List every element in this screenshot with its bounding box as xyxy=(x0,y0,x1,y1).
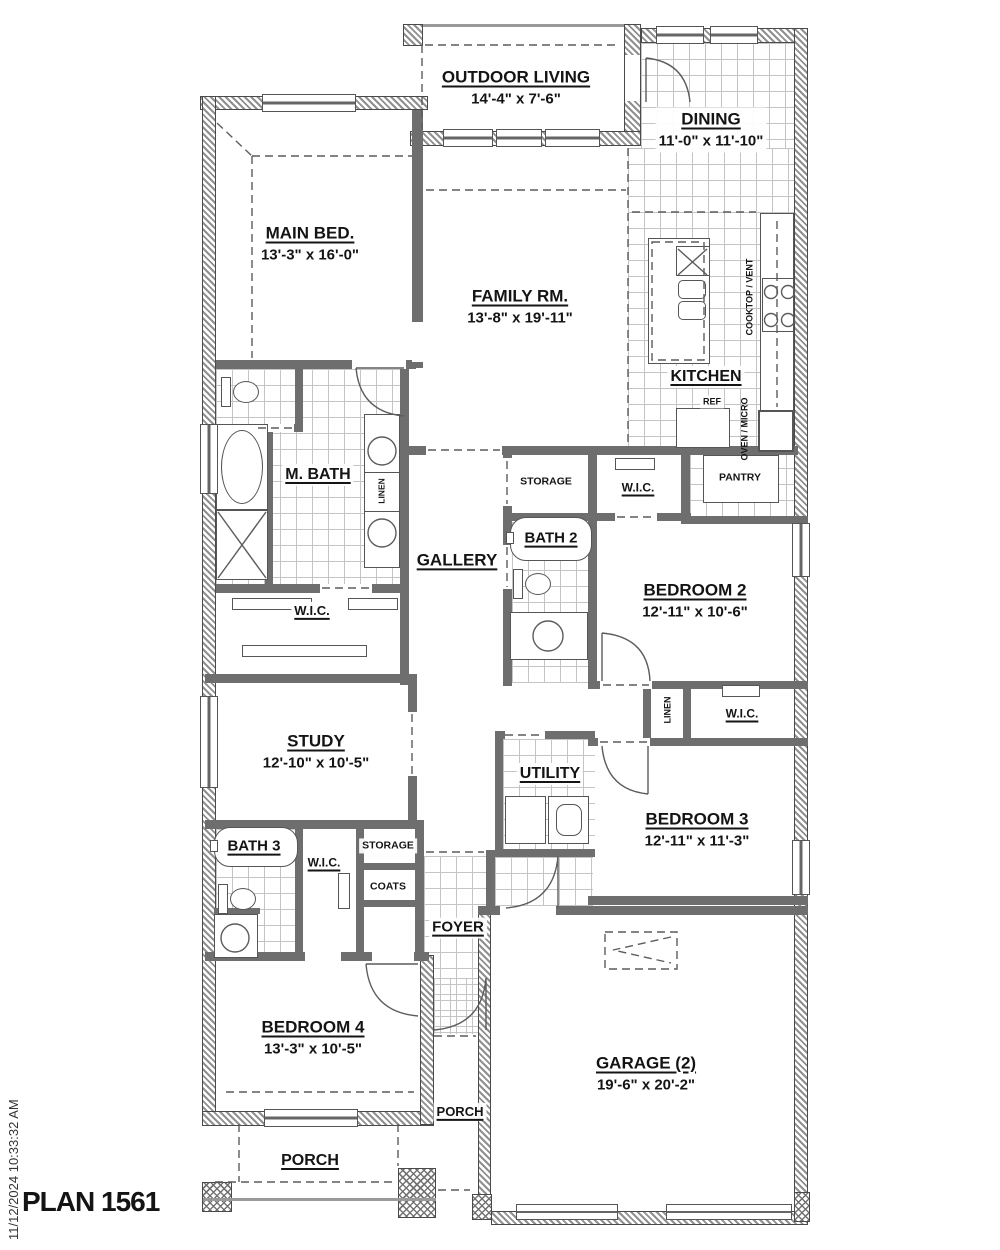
room-dims: 12'-10" x 10'-5" xyxy=(263,755,369,772)
room-label-pantry: PANTRY xyxy=(716,470,764,485)
door-opening xyxy=(615,513,657,521)
room-label-kitchen: KITCHEN xyxy=(667,366,744,388)
wall-segment xyxy=(681,446,690,521)
door-opening xyxy=(600,681,652,689)
room-label-porch-front: PORCH xyxy=(278,1150,342,1172)
room-label-main-bed: MAIN BED. 13'-3" x 16'-0" xyxy=(258,222,362,267)
room-name: LINEN xyxy=(662,697,672,724)
window xyxy=(264,1109,358,1127)
toilet-tank xyxy=(218,884,228,914)
appliance-name: REF xyxy=(703,396,721,406)
vanity xyxy=(214,914,258,958)
room-name: BEDROOM 3 xyxy=(646,810,749,829)
room-name: W.I.C. xyxy=(622,481,655,495)
porch-post xyxy=(398,1168,436,1218)
toilet-bowl xyxy=(233,381,259,403)
room-label-bedroom3: BEDROOM 3 12'-11" x 11'-3" xyxy=(642,808,753,853)
porch-post xyxy=(472,1194,492,1220)
room-name: STUDY xyxy=(287,732,345,751)
room-name: STORAGE xyxy=(362,839,414,851)
window xyxy=(200,696,218,788)
closet-rod xyxy=(615,458,655,470)
room-name: STORAGE xyxy=(520,475,572,487)
room-dims: 12'-11" x 11'-3" xyxy=(645,833,750,850)
wall-segment xyxy=(420,955,434,1125)
room-name: BEDROOM 4 xyxy=(262,1018,365,1037)
room-dims: 19'-6" x 20'-2" xyxy=(597,1077,695,1094)
wall-segment xyxy=(681,516,808,524)
wall-segment xyxy=(216,584,406,593)
closet-rod xyxy=(722,685,760,697)
room-name: LINEN xyxy=(377,478,387,504)
mud-hall-tile-floor xyxy=(495,857,593,907)
room-label-m-bath: M. BATH xyxy=(282,464,353,486)
door-opening xyxy=(503,458,512,506)
room-dims: 11'-0" x 11'-10" xyxy=(659,133,764,150)
wall-segment xyxy=(495,849,595,857)
room-name: BATH 2 xyxy=(524,530,577,547)
window xyxy=(443,129,493,147)
room-name: COATS xyxy=(370,880,406,892)
cased-opening xyxy=(408,712,417,776)
room-name: PANTRY xyxy=(719,471,761,483)
room-name: W.I.C. xyxy=(294,603,329,618)
room-label-bath3: BATH 3 xyxy=(224,837,283,858)
door-opening xyxy=(412,322,423,362)
room-name: BATH 3 xyxy=(227,838,280,855)
window xyxy=(792,840,810,895)
floor-plan-canvas: OUTDOOR LIVING 14'-4" x 7'-6" DINING 11'… xyxy=(0,0,1000,1250)
wall-segment xyxy=(413,24,631,27)
closet-rod xyxy=(338,873,350,909)
wall-segment xyxy=(403,24,423,46)
wall-segment xyxy=(643,681,651,745)
cased-opening xyxy=(426,446,502,455)
room-label-family-rm: FAMILY RM. 13'-8" x 19'-11" xyxy=(464,285,576,330)
wall-segment xyxy=(794,28,808,1225)
porch-post xyxy=(202,1182,232,1212)
toilet-tank xyxy=(513,569,523,599)
room-name: PORCH xyxy=(281,1152,339,1169)
window xyxy=(262,94,356,112)
room-label-bath2: BATH 2 xyxy=(521,529,580,550)
door-opening xyxy=(505,731,545,739)
room-name: UTILITY xyxy=(520,765,580,782)
wall-segment xyxy=(495,731,503,857)
room-dims: 13'-3" x 16'-0" xyxy=(261,247,359,264)
kitchen-sink xyxy=(678,280,706,299)
label-cooktop-vent: COOKTOP / VENT xyxy=(743,256,756,339)
room-name: W.I.C. xyxy=(726,707,759,721)
room-label-wic-bed2: W.I.C. xyxy=(619,480,658,497)
room-dims: 12'-11" x 10'-6" xyxy=(642,604,748,621)
room-label-gallery: GALLERY xyxy=(414,548,501,571)
room-label-dining: DINING 11'-0" x 11'-10" xyxy=(656,108,767,153)
wall-segment xyxy=(356,863,422,870)
toilet-bowl xyxy=(230,888,256,910)
door-opening xyxy=(598,738,650,746)
wall-segment xyxy=(356,900,422,907)
room-name: FOYER xyxy=(432,919,484,936)
room-label-bedroom4: BEDROOM 4 13'-3" x 10'-5" xyxy=(259,1016,368,1061)
door-opening xyxy=(625,55,640,101)
porch-slab-edge xyxy=(203,1198,436,1201)
appliance-name: COOKTOP / VENT xyxy=(744,259,754,336)
label-ref: REF xyxy=(700,395,724,408)
plan-title: PLAN 1561 xyxy=(22,1186,159,1218)
door-opening xyxy=(352,360,406,369)
room-name: FAMILY RM. xyxy=(472,287,568,306)
washer xyxy=(505,796,546,844)
room-name: M. BATH xyxy=(285,466,350,483)
room-label-storage-hall: STORAGE xyxy=(517,474,575,489)
room-name: OUTDOOR LIVING xyxy=(442,68,590,87)
room-label-porch-rear: PORCH xyxy=(434,1103,487,1121)
label-linen-mbath: LINEN xyxy=(376,475,389,507)
room-name: PORCH xyxy=(437,1104,484,1119)
room-name: GALLERY xyxy=(417,550,498,569)
room-label-study: STUDY 12'-10" x 10'-5" xyxy=(260,730,372,775)
wall-segment xyxy=(478,908,491,1218)
door-opening xyxy=(305,952,341,961)
garage-door xyxy=(516,1204,618,1220)
room-name: DINING xyxy=(681,110,741,129)
plan-timestamp: 11/12/2024 10:33:32 AM xyxy=(6,1099,21,1240)
room-label-foyer: FOYER xyxy=(429,918,487,939)
door-opening xyxy=(372,952,414,961)
wall-segment xyxy=(295,369,303,424)
porch-post xyxy=(794,1192,810,1222)
room-label-storage-entry: STORAGE xyxy=(359,838,417,853)
wall-segment xyxy=(205,674,417,683)
oven-micro-unit xyxy=(758,410,794,452)
room-dims: 13'-8" x 19'-11" xyxy=(467,310,573,327)
garage-door xyxy=(666,1204,792,1220)
refrigerator xyxy=(676,408,730,448)
window xyxy=(496,129,542,147)
room-label-garage: GARAGE (2) 19'-6" x 20'-2" xyxy=(593,1052,699,1097)
toilet-bowl xyxy=(525,573,551,595)
closet-rod xyxy=(348,598,398,610)
room-label-utility: UTILITY xyxy=(517,763,583,785)
wall-segment xyxy=(683,681,691,745)
room-name: BEDROOM 2 xyxy=(644,581,747,600)
room-name: GARAGE (2) xyxy=(596,1054,696,1073)
bathtub-basin xyxy=(221,430,263,504)
wall-segment xyxy=(588,446,597,686)
room-dims: 13'-3" x 10'-5" xyxy=(264,1041,362,1058)
room-label-bedroom2: BEDROOM 2 12'-11" x 10'-6" xyxy=(639,579,751,624)
tub-faucet xyxy=(506,532,514,544)
appliance-name: OVEN / MICRO xyxy=(739,397,749,460)
entry-tile-floor xyxy=(434,978,478,1034)
room-label-coats: COATS xyxy=(367,879,409,894)
wall-segment xyxy=(588,896,808,905)
shower xyxy=(216,510,268,580)
label-oven-micro: OVEN / MICRO xyxy=(738,394,751,463)
dishwasher xyxy=(676,246,710,276)
plan-linework xyxy=(0,0,1000,1250)
room-name: KITCHEN xyxy=(670,368,741,385)
window xyxy=(200,424,218,494)
room-label-wic-main: W.I.C. xyxy=(291,602,332,620)
door-opening xyxy=(500,906,556,915)
room-dims: 14'-4" x 7'-6" xyxy=(471,91,561,108)
label-linen-hall: LINEN xyxy=(661,694,674,727)
wall-segment xyxy=(202,96,216,1126)
kitchen-sink xyxy=(678,301,706,320)
room-name: MAIN BED. xyxy=(266,224,355,243)
window xyxy=(656,26,704,44)
window xyxy=(792,523,810,577)
window xyxy=(710,26,758,44)
room-label-wic-bed4: W.I.C. xyxy=(305,855,344,872)
dryer-door xyxy=(556,804,582,836)
room-label-outdoor-living: OUTDOOR LIVING 14'-4" x 7'-6" xyxy=(439,66,593,111)
room-label-wic-bed3: W.I.C. xyxy=(723,706,762,723)
window xyxy=(545,129,600,147)
closet-rod xyxy=(242,645,367,657)
room-name: W.I.C. xyxy=(308,856,341,870)
vanity xyxy=(510,612,588,660)
door-opening xyxy=(320,584,372,593)
wall-segment xyxy=(486,850,495,910)
wall-segment xyxy=(400,360,409,685)
toilet-tank xyxy=(221,377,231,407)
tub-faucet xyxy=(210,840,218,852)
cooktop xyxy=(762,278,794,332)
